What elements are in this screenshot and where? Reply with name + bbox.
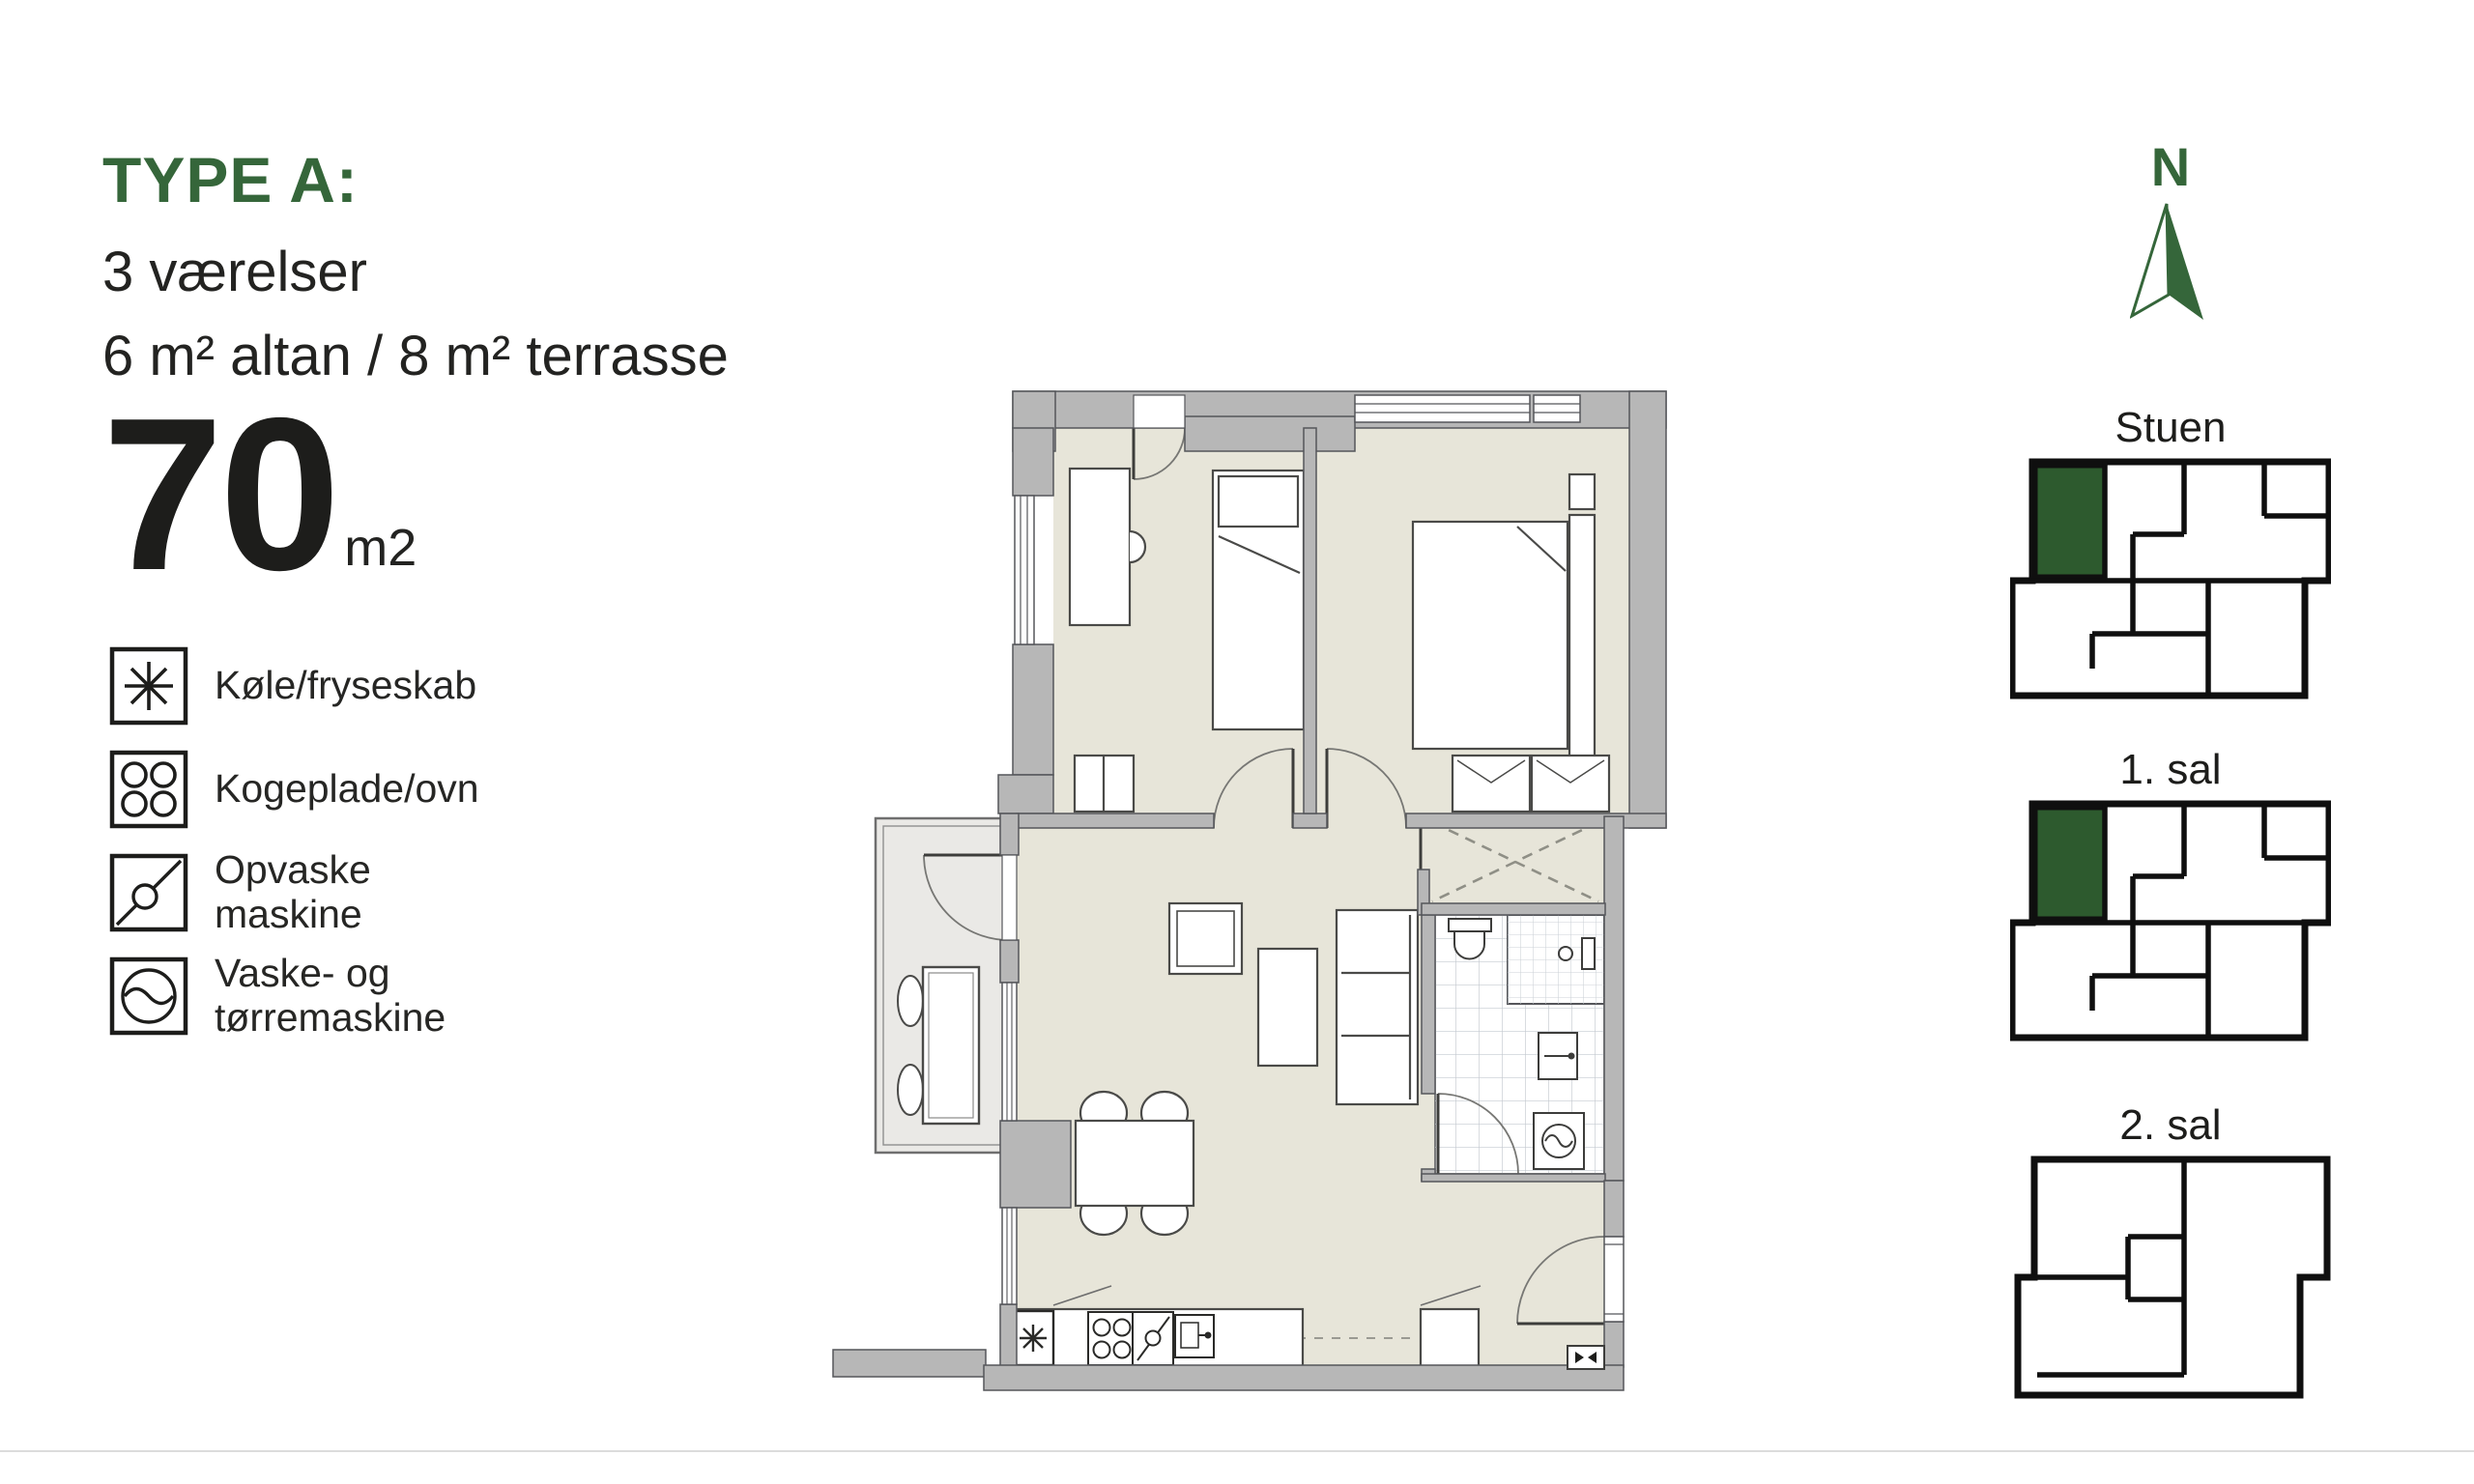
legend-label: Opvaske maskine bbox=[215, 848, 371, 937]
floor-diagram-2-sal: 2. sal bbox=[2010, 1101, 2331, 1399]
floor-label: 1. sal bbox=[2010, 746, 2331, 794]
floor-diagram-1-sal: 1. sal bbox=[2010, 746, 2331, 1043]
window bbox=[1355, 395, 1530, 422]
headboard bbox=[1569, 515, 1595, 756]
sink-symbol bbox=[1175, 1315, 1214, 1357]
legend-label: Køle/fryseskab bbox=[215, 664, 476, 708]
area-value: 70 bbox=[102, 405, 336, 584]
tall-cabinet bbox=[1421, 1309, 1479, 1367]
tv-bench bbox=[1169, 903, 1242, 974]
floor-label: Stuen bbox=[2010, 404, 2331, 452]
hob-symbol bbox=[1088, 1312, 1133, 1365]
floor-diagram-stuen: Stuen bbox=[2010, 404, 2331, 701]
compass-label: N bbox=[2122, 135, 2219, 198]
floor-label: 2. sal bbox=[2010, 1101, 2331, 1150]
balcony-chair bbox=[898, 1065, 923, 1115]
window bbox=[1015, 496, 1034, 644]
single-bed-pillow bbox=[1219, 476, 1298, 527]
compass: N bbox=[2122, 135, 2219, 322]
wardrobe bbox=[1453, 756, 1530, 812]
dining-table bbox=[1076, 1121, 1194, 1206]
highlighted-unit bbox=[2035, 808, 2105, 919]
balcony bbox=[876, 818, 1011, 1153]
legend-item-fridge: Køle/fryseskab bbox=[108, 645, 479, 727]
closet bbox=[1070, 469, 1130, 625]
area-row: 70 m2 bbox=[102, 405, 729, 584]
building-outline-1-sal bbox=[2010, 800, 2331, 1043]
window bbox=[1534, 395, 1580, 422]
highlighted-unit bbox=[2035, 466, 2105, 577]
coffee-table bbox=[1258, 949, 1317, 1066]
north-arrow-icon bbox=[2130, 202, 2211, 322]
legend-item-washer-dryer: Vaske- og tørremaskine bbox=[108, 956, 479, 1037]
sofa bbox=[1337, 910, 1418, 1104]
fridge-symbol bbox=[1013, 1311, 1053, 1365]
floor-plan bbox=[829, 382, 1680, 1444]
apartment-info: TYPE A: 3 værelser 6 m² altan / 8 m² ter… bbox=[102, 143, 729, 584]
rooms-line: 3 værelser bbox=[102, 238, 729, 308]
vent-box bbox=[1568, 1346, 1604, 1369]
floor-plan-sheet: TYPE A: 3 værelser 6 m² altan / 8 m² ter… bbox=[0, 0, 2474, 1484]
bedside-cabinet bbox=[1569, 474, 1595, 509]
page-divider-line bbox=[0, 1450, 2474, 1452]
legend-item-hob: Kogeplade/ovn bbox=[108, 749, 479, 830]
dishwasher-icon bbox=[108, 852, 189, 933]
toilet-bowl bbox=[1454, 931, 1484, 959]
window bbox=[1002, 983, 1017, 1121]
toilet-tank bbox=[1449, 919, 1491, 931]
legend-label: Vaske- og tørremaskine bbox=[215, 952, 446, 1041]
legend-item-dishwasher: Opvaske maskine bbox=[108, 852, 479, 933]
apartment-type-title: TYPE A: bbox=[102, 143, 729, 216]
area-unit: m2 bbox=[344, 518, 417, 578]
double-bed bbox=[1413, 522, 1568, 749]
legend: Køle/fryseskab Kogeplade/ovn Opvaske mas… bbox=[108, 645, 479, 1059]
fridge-freezer-icon bbox=[108, 645, 189, 727]
balcony-table bbox=[923, 967, 979, 1124]
washer-dryer-icon bbox=[108, 956, 189, 1037]
building-outline-2-sal bbox=[2010, 1156, 2331, 1399]
window bbox=[1002, 1208, 1017, 1304]
balcony-door-opening bbox=[1002, 855, 1017, 940]
french-door-opening bbox=[1134, 395, 1185, 428]
building-outline-stuen bbox=[2010, 458, 2331, 701]
legend-label: Kogeplade/ovn bbox=[215, 767, 479, 812]
balcony-chair bbox=[898, 976, 923, 1026]
entrance-door-frame bbox=[1604, 1237, 1624, 1322]
hob-oven-icon bbox=[108, 749, 189, 830]
wardrobe bbox=[1532, 756, 1609, 812]
dishwasher-symbol bbox=[1133, 1312, 1173, 1365]
